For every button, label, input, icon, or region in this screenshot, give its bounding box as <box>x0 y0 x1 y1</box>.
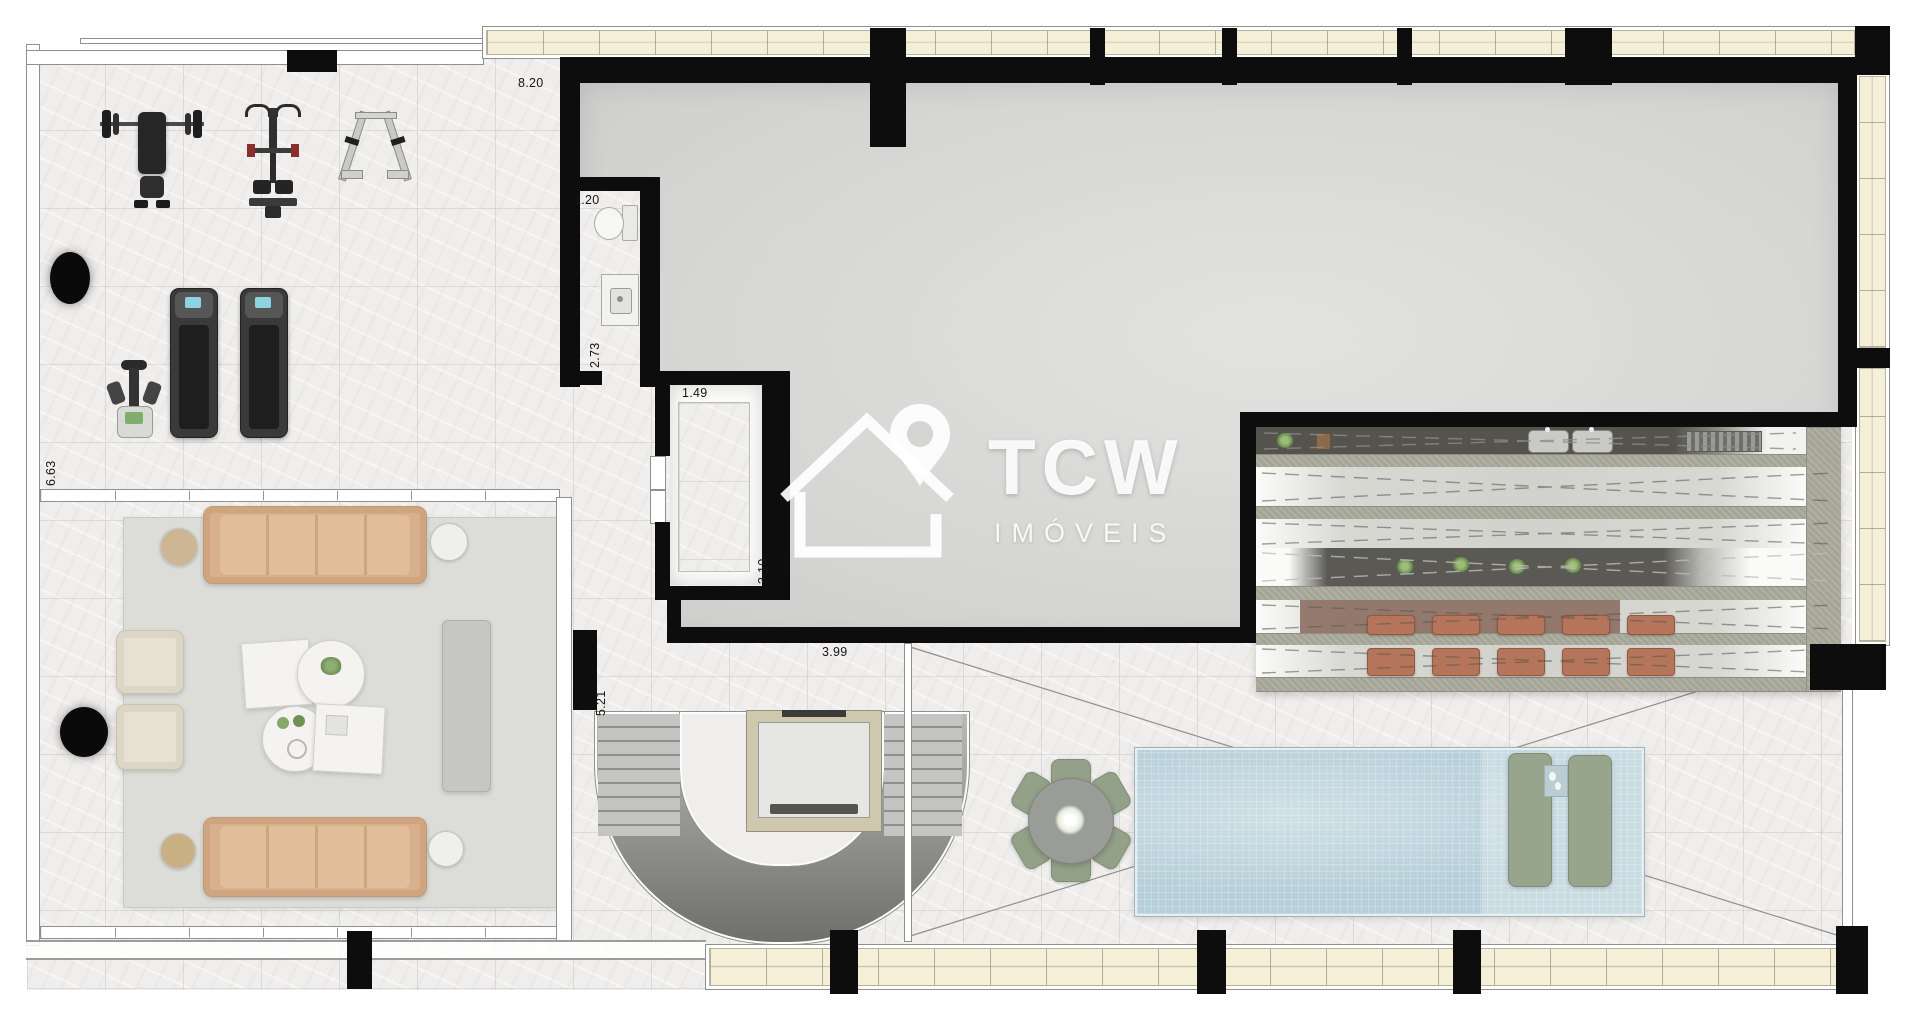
side-table <box>160 833 196 869</box>
dim-store-width: 1.49 <box>682 386 708 400</box>
daybed-bench <box>442 620 491 792</box>
wall-top <box>560 57 1857 83</box>
storage-room-shaft <box>678 402 750 572</box>
dim-store-depth: 3.10 <box>756 558 770 584</box>
wall-gym-right <box>560 57 580 387</box>
wall-right-stub <box>1853 348 1890 368</box>
watermark: TCW IMÓVEIS <box>770 396 1190 571</box>
glass-parapet-top <box>80 38 486 44</box>
floor-plan: 8.20 1.20 2.73 1.49 3.10 6.63 5.21 3.99 … <box>0 0 1920 1023</box>
glass-wall-left <box>26 44 40 946</box>
armchair <box>116 630 184 694</box>
wall-store-bottom <box>655 586 790 600</box>
window-stub <box>1197 930 1226 994</box>
wall-wc-top <box>560 177 660 191</box>
wall-gym-top-chunk <box>287 50 337 72</box>
column <box>60 707 108 757</box>
exercise-bike <box>103 360 165 440</box>
watermark-subtitle: IMÓVEIS <box>994 518 1177 549</box>
lat-pulldown-machine <box>245 104 301 218</box>
squat-rack <box>343 108 407 180</box>
window-stub <box>1090 28 1105 85</box>
window-stub <box>347 931 372 989</box>
window-band-right-upper <box>1855 72 1890 352</box>
wall-pier <box>870 28 906 147</box>
wall-store-top <box>655 371 790 385</box>
gourmet-bar-counters <box>1256 427 1840 692</box>
side-table <box>160 528 198 566</box>
glass-living-bottom <box>40 926 560 939</box>
wall-step <box>1240 412 1256 643</box>
glass-divider-gym-living <box>40 489 560 502</box>
house-pin-icon <box>770 396 985 564</box>
bathroom-sink <box>601 274 639 326</box>
column <box>50 252 90 304</box>
window-band-bottom <box>705 944 1847 990</box>
dim-terrace-span: 3.99 <box>822 645 848 659</box>
dining-table-set <box>995 745 1145 895</box>
glass-terrace-divider <box>904 643 912 942</box>
treadmill <box>240 288 288 438</box>
window-stub <box>1222 28 1237 85</box>
pool-side-table <box>1544 765 1568 797</box>
dim-wc-depth: 2.73 <box>588 342 602 368</box>
toilet <box>594 203 638 243</box>
armchair <box>116 704 184 770</box>
bench-press <box>100 108 204 208</box>
side-table <box>428 831 464 867</box>
elevator <box>746 710 882 832</box>
storage-door <box>650 490 666 524</box>
treadmill <box>170 288 218 438</box>
wall-wc-right <box>640 190 660 387</box>
dim-stair-depth: 5.21 <box>594 690 608 716</box>
pool-lounger <box>1568 755 1612 887</box>
coffee-table-round <box>297 640 365 708</box>
glass-living-right <box>556 497 572 942</box>
wall-store-left <box>655 385 670 456</box>
window-band-top <box>482 26 1859 59</box>
sofa <box>203 817 427 897</box>
dim-wc-width: 1.20 <box>574 193 600 207</box>
window-band-right-lower <box>1855 364 1890 646</box>
sofa <box>203 506 427 584</box>
wall-party-bottom <box>667 627 1256 643</box>
wall-corner-bar <box>1810 644 1886 690</box>
window-stub <box>1836 926 1868 994</box>
coffee-table-square <box>312 703 385 775</box>
window-stub <box>830 930 858 994</box>
side-table <box>430 523 468 561</box>
wall-wc-bottom <box>560 371 602 385</box>
dim-hall-width: 8.20 <box>518 76 544 90</box>
wall-bar-top <box>1240 412 1857 427</box>
glass-terrace-right <box>1842 688 1853 942</box>
dim-gym-depth: 6.63 <box>44 460 58 486</box>
watermark-brand: TCW <box>988 422 1184 513</box>
window-stub <box>1565 28 1612 85</box>
window-stub <box>1397 28 1412 85</box>
wall-corner-top-right <box>1855 26 1890 75</box>
window-stub <box>1453 930 1481 994</box>
glass-wall-gym-top <box>26 50 484 65</box>
storage-door <box>650 456 666 490</box>
